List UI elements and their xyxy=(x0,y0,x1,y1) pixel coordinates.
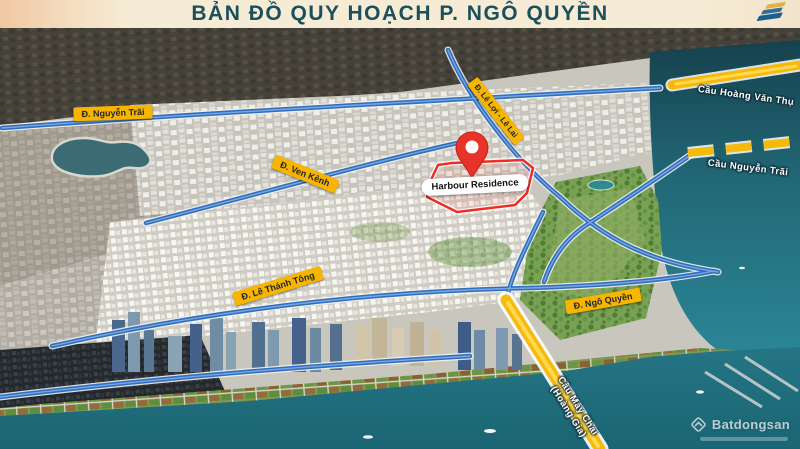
watermark: Batdongsan xyxy=(690,416,790,433)
page-title: BẢN ĐỒ QUY HOẠCH P. NGÔ QUYỀN xyxy=(191,0,608,28)
planning-map-screenshot: BẢN ĐỒ QUY HOẠCH P. NGÔ QUYỀN Đ. Nguyễn … xyxy=(0,0,800,449)
road-label-nguyen-trai: Đ. Nguyễn Trãi xyxy=(73,105,152,122)
watermark-house-icon xyxy=(690,416,707,433)
park-pond xyxy=(588,180,614,190)
watermark-brand: Batdongsan xyxy=(712,417,790,432)
title-band: BẢN ĐỒ QUY HOẠCH P. NGÔ QUYỀN xyxy=(0,0,800,28)
aerial-planning-map xyxy=(0,0,800,449)
watermark-subtext-bar xyxy=(700,437,788,441)
